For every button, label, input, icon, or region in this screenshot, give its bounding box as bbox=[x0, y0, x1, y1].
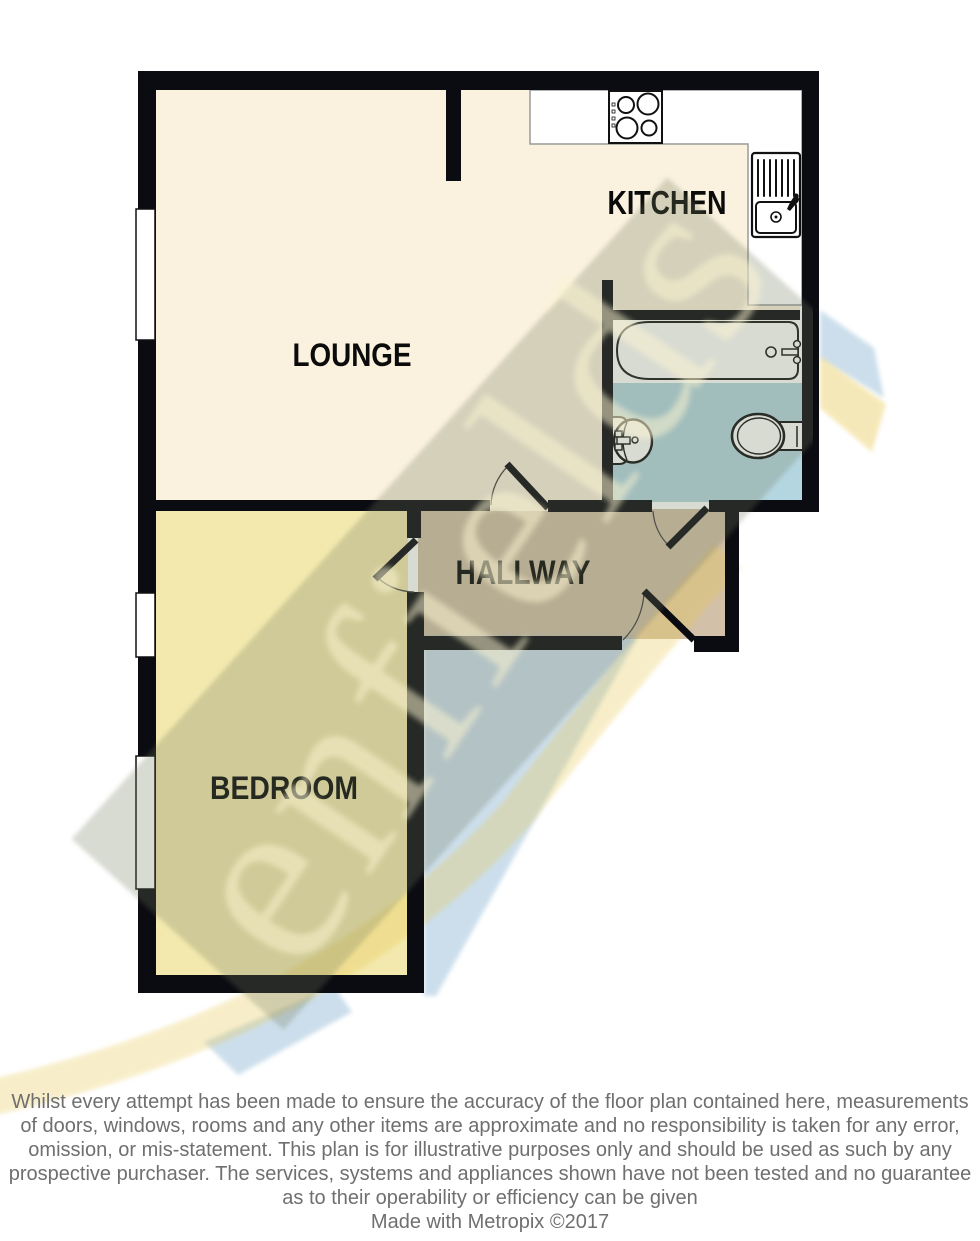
svg-text:LOUNGE: LOUNGE bbox=[293, 337, 412, 373]
svg-text:as to their operability or eff: as to their operability or efficiency ca… bbox=[282, 1187, 697, 1209]
svg-text:prospective purchaser. The ser: prospective purchaser. The services, sys… bbox=[9, 1163, 971, 1185]
svg-text:Whilst every attempt has been: Whilst every attempt has been made to en… bbox=[11, 1091, 968, 1113]
svg-text:of doors, windows, rooms and a: of doors, windows, rooms and any other i… bbox=[20, 1115, 959, 1137]
svg-text:omission, or mis-statement. Th: omission, or mis-statement. This plan is… bbox=[28, 1139, 951, 1161]
svg-text:Made with Metropix ©2017: Made with Metropix ©2017 bbox=[371, 1211, 609, 1233]
